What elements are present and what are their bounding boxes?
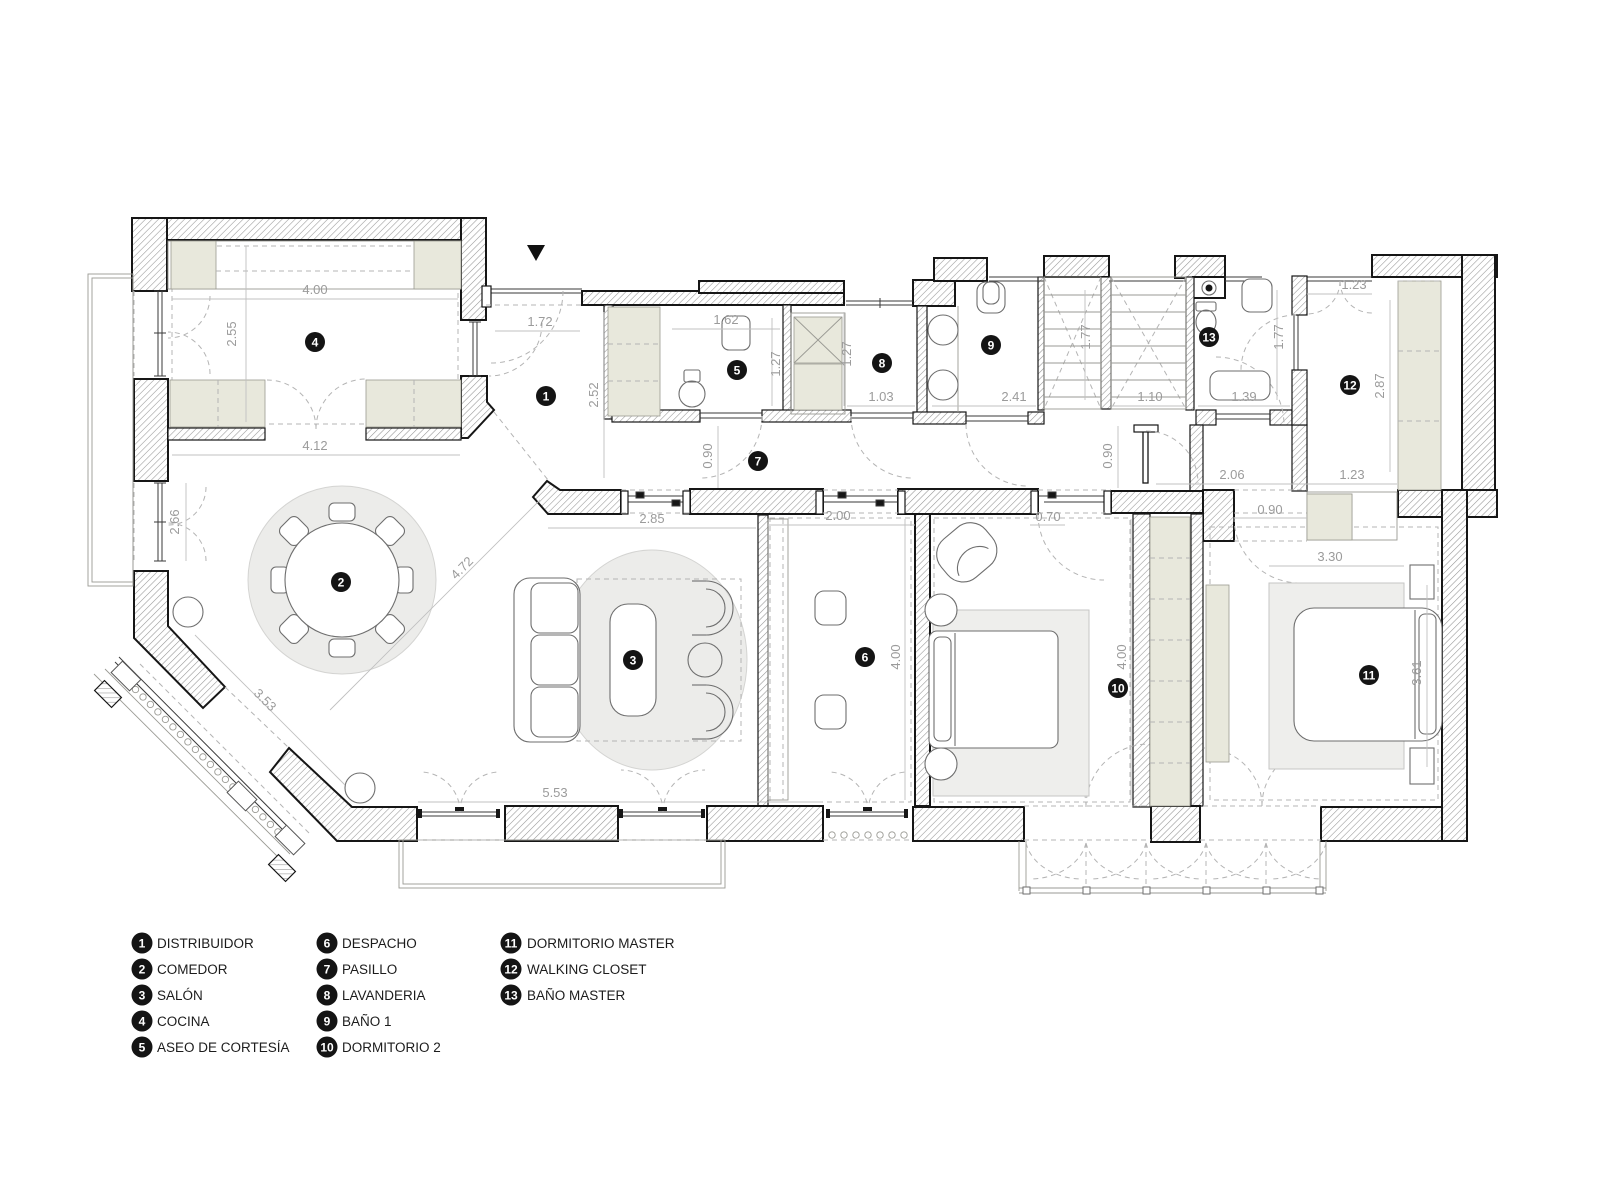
svg-text:5: 5 bbox=[734, 364, 741, 378]
svg-text:3: 3 bbox=[630, 654, 637, 668]
svg-text:1.10: 1.10 bbox=[1137, 389, 1162, 404]
svg-text:DORMITORIO 2: DORMITORIO 2 bbox=[342, 1040, 441, 1055]
svg-text:6: 6 bbox=[324, 937, 331, 951]
svg-text:9: 9 bbox=[988, 339, 995, 353]
svg-text:11: 11 bbox=[1363, 669, 1376, 683]
svg-text:2.55: 2.55 bbox=[224, 321, 239, 346]
svg-text:4: 4 bbox=[139, 1015, 146, 1029]
svg-text:4.00: 4.00 bbox=[1114, 644, 1129, 669]
svg-text:BAÑO 1: BAÑO 1 bbox=[342, 1014, 392, 1029]
svg-text:5.53: 5.53 bbox=[542, 785, 567, 800]
svg-text:11: 11 bbox=[505, 937, 518, 951]
svg-text:1: 1 bbox=[543, 390, 550, 404]
svg-text:DESPACHO: DESPACHO bbox=[342, 936, 417, 951]
svg-text:7: 7 bbox=[755, 455, 762, 469]
svg-text:SALÓN: SALÓN bbox=[157, 988, 203, 1003]
svg-text:4.00: 4.00 bbox=[302, 282, 327, 297]
svg-text:WALKING CLOSET: WALKING CLOSET bbox=[527, 962, 647, 977]
svg-text:4.12: 4.12 bbox=[302, 438, 327, 453]
svg-text:DORMITORIO MASTER: DORMITORIO MASTER bbox=[527, 936, 675, 951]
svg-text:PASILLO: PASILLO bbox=[342, 962, 397, 977]
svg-text:0.70: 0.70 bbox=[1035, 509, 1060, 524]
svg-text:1.27: 1.27 bbox=[839, 341, 854, 366]
svg-text:COMEDOR: COMEDOR bbox=[157, 962, 228, 977]
svg-text:2.87: 2.87 bbox=[1372, 373, 1387, 398]
svg-text:1.23: 1.23 bbox=[1341, 277, 1366, 292]
svg-text:7: 7 bbox=[324, 963, 331, 977]
svg-text:0.90: 0.90 bbox=[1257, 502, 1282, 517]
svg-text:1.39: 1.39 bbox=[1231, 389, 1256, 404]
svg-text:9: 9 bbox=[324, 1015, 331, 1029]
svg-text:2: 2 bbox=[338, 576, 345, 590]
svg-text:12: 12 bbox=[504, 963, 518, 977]
svg-text:1.27: 1.27 bbox=[768, 351, 783, 376]
svg-text:3.30: 3.30 bbox=[1317, 549, 1342, 564]
svg-text:1.62: 1.62 bbox=[713, 312, 738, 327]
svg-text:10: 10 bbox=[1111, 682, 1125, 696]
svg-text:1.23: 1.23 bbox=[1339, 467, 1364, 482]
svg-text:6: 6 bbox=[862, 651, 869, 665]
svg-text:2.52: 2.52 bbox=[586, 382, 601, 407]
svg-text:1.72: 1.72 bbox=[527, 314, 552, 329]
svg-text:4: 4 bbox=[312, 336, 319, 350]
svg-text:2.85: 2.85 bbox=[639, 511, 664, 526]
svg-text:2.41: 2.41 bbox=[1001, 389, 1026, 404]
svg-text:4.00: 4.00 bbox=[888, 644, 903, 669]
svg-text:1.77: 1.77 bbox=[1271, 324, 1286, 349]
svg-text:0.90: 0.90 bbox=[700, 443, 715, 468]
svg-text:ASEO DE CORTESÍA: ASEO DE CORTESÍA bbox=[157, 1040, 290, 1055]
svg-text:3.61: 3.61 bbox=[1409, 660, 1424, 685]
svg-text:5: 5 bbox=[139, 1041, 146, 1055]
svg-text:3: 3 bbox=[139, 989, 146, 1003]
svg-text:12: 12 bbox=[1343, 379, 1357, 393]
svg-text:13: 13 bbox=[1202, 331, 1216, 345]
svg-text:2.06: 2.06 bbox=[1219, 467, 1244, 482]
svg-text:1.03: 1.03 bbox=[868, 389, 893, 404]
svg-text:13: 13 bbox=[504, 989, 518, 1003]
svg-text:COCINA: COCINA bbox=[157, 1014, 210, 1029]
svg-text:1.77: 1.77 bbox=[1078, 324, 1093, 349]
svg-text:10: 10 bbox=[320, 1041, 334, 1055]
svg-text:2.00: 2.00 bbox=[825, 508, 850, 523]
svg-text:8: 8 bbox=[324, 989, 331, 1003]
svg-text:2.66: 2.66 bbox=[167, 509, 182, 534]
svg-text:LAVANDERIA: LAVANDERIA bbox=[342, 988, 426, 1003]
svg-text:1: 1 bbox=[139, 937, 146, 951]
svg-text:2: 2 bbox=[139, 963, 146, 977]
svg-text:BAÑO MASTER: BAÑO MASTER bbox=[527, 988, 626, 1003]
svg-text:8: 8 bbox=[879, 357, 886, 371]
svg-text:DISTRIBUIDOR: DISTRIBUIDOR bbox=[157, 936, 254, 951]
svg-text:0.90: 0.90 bbox=[1100, 443, 1115, 468]
